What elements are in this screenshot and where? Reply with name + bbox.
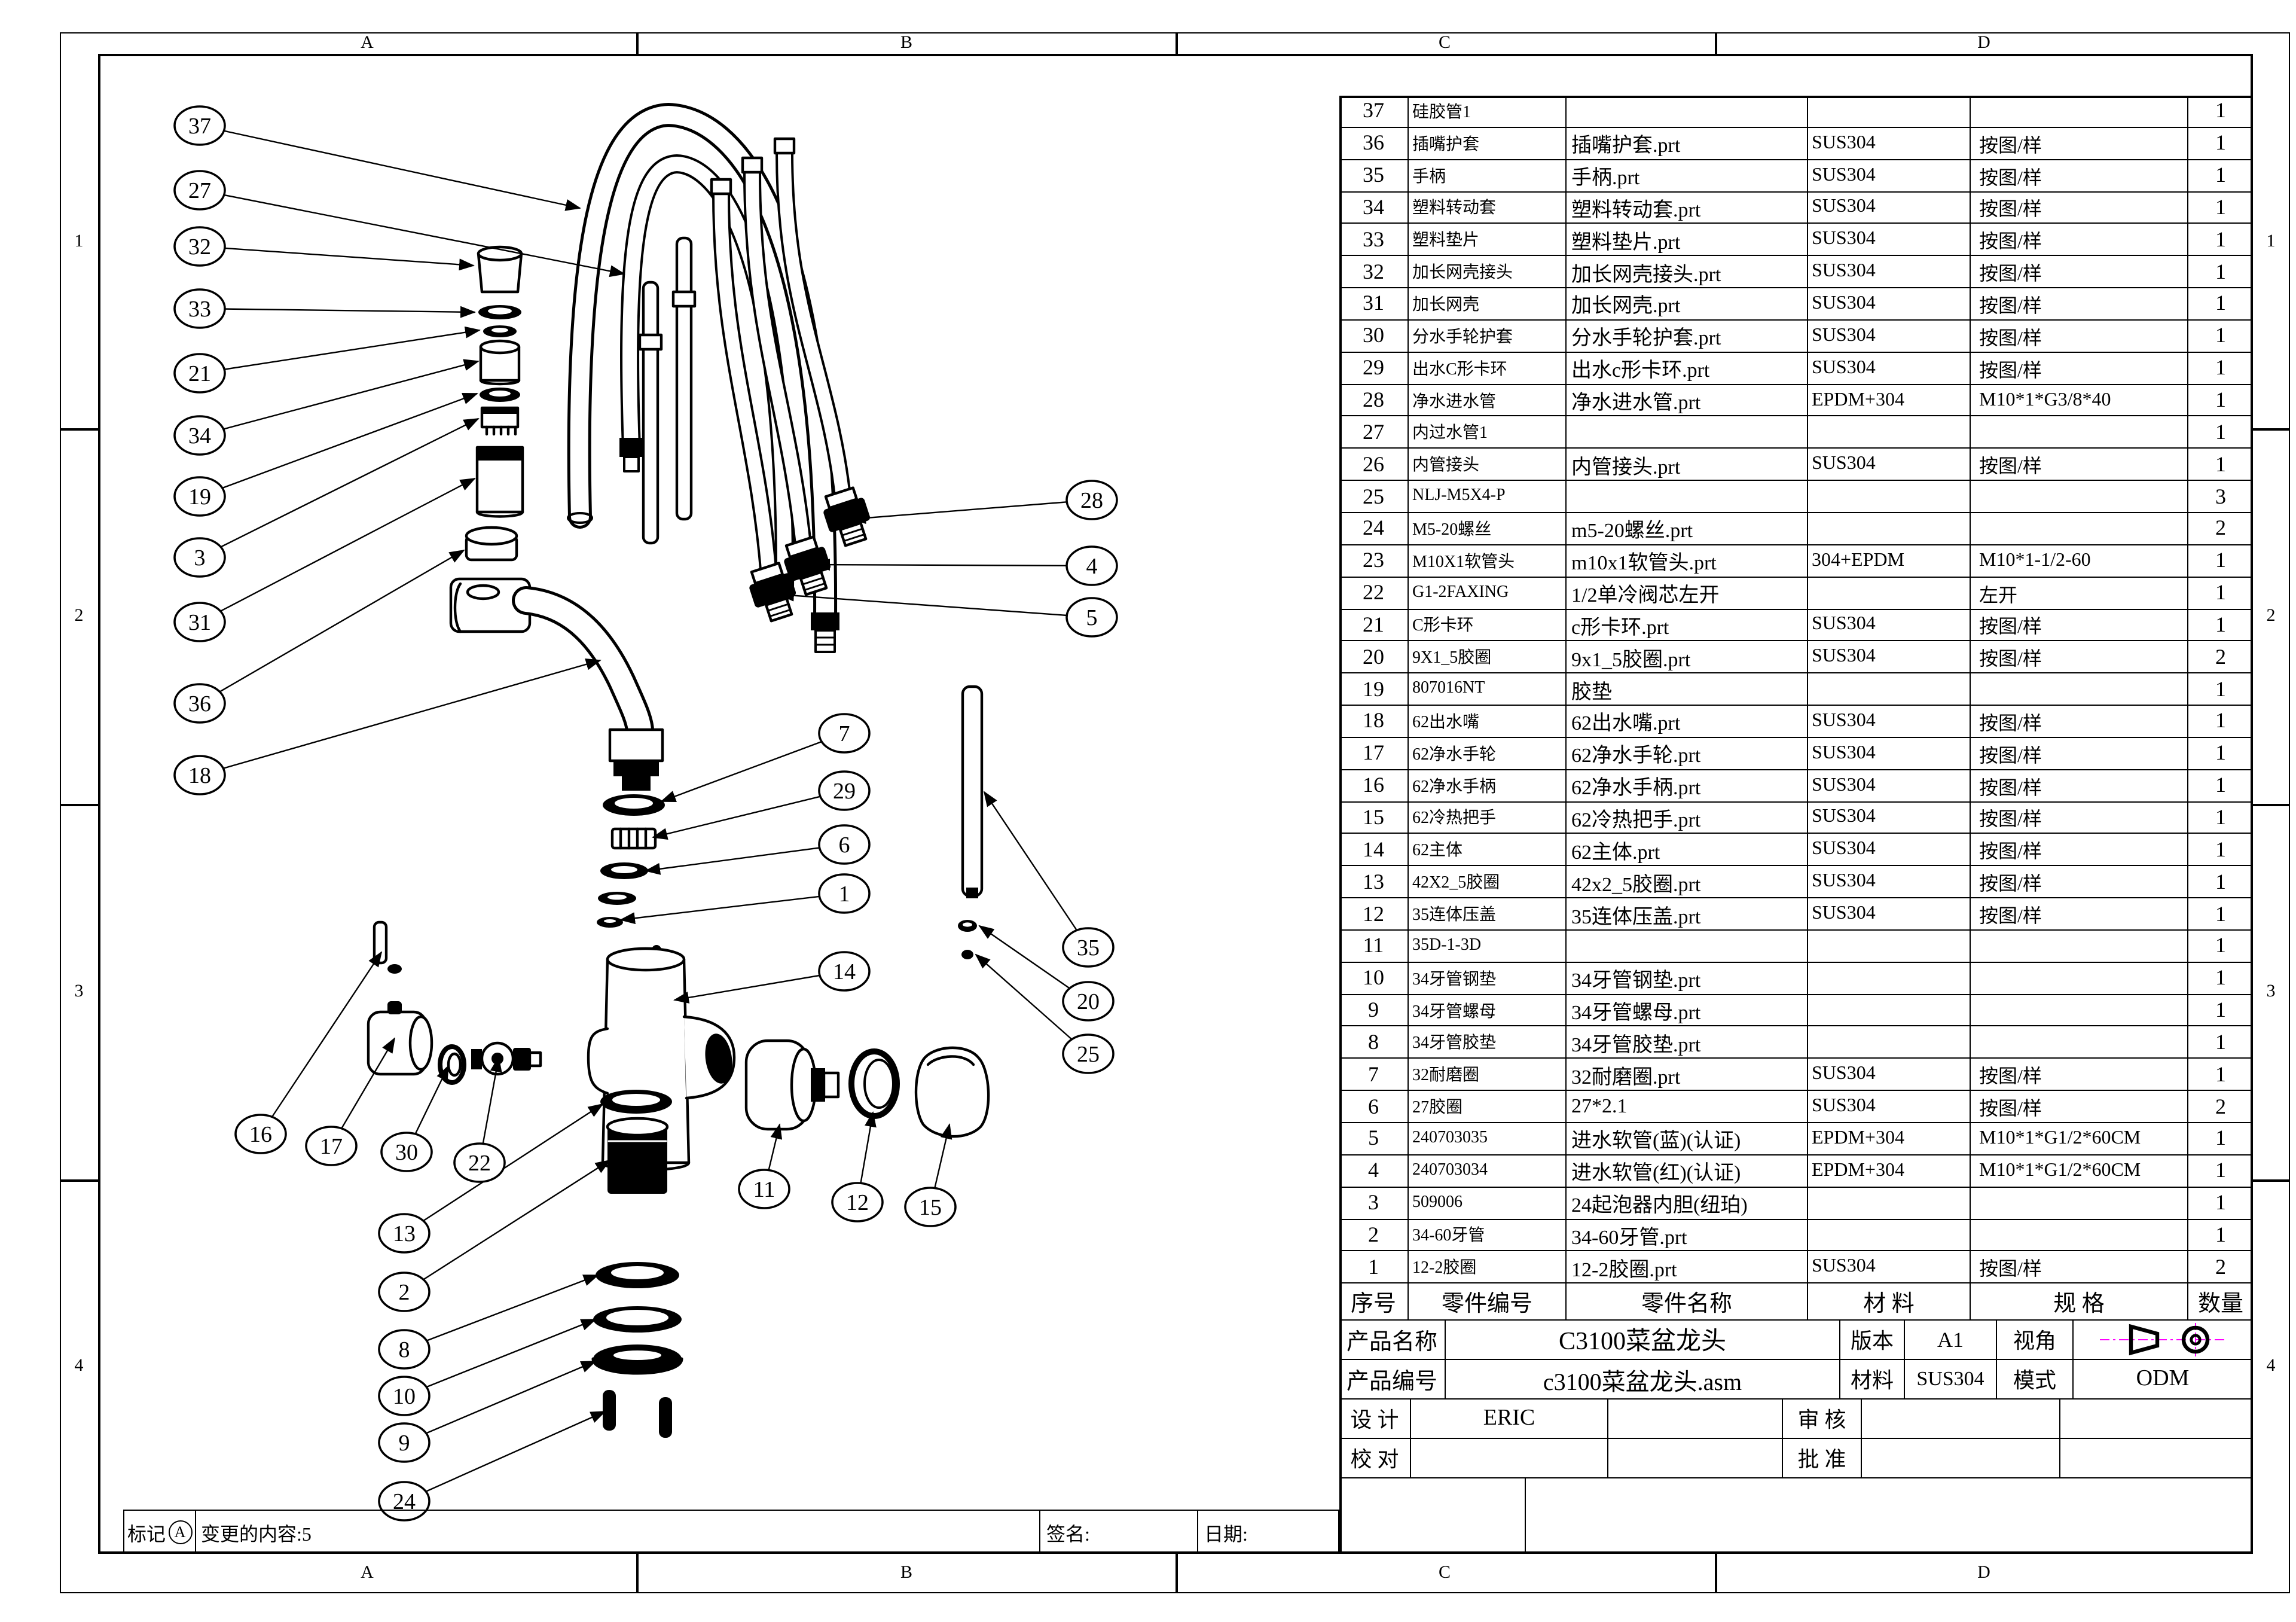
bom-cell-name: 62净水手轮.prt <box>1567 738 1808 769</box>
material-value: SUS304 <box>1905 1360 1997 1400</box>
bom-cell-name: 34牙管钢垫.prt <box>1567 963 1808 994</box>
zone-tick <box>636 1554 638 1593</box>
svg-text:20: 20 <box>1077 989 1100 1014</box>
bom-cell-code: 240703034 <box>1409 1155 1567 1187</box>
balloon-leader-33 <box>200 309 475 312</box>
svg-text:6: 6 <box>839 833 850 858</box>
part-21-c-clip <box>483 325 517 337</box>
bom-cell-qty: 1 <box>2188 417 2253 448</box>
bom-cell-qty: 1 <box>2188 706 2253 737</box>
bom-cell-qty: 1 <box>2188 96 2253 127</box>
bom-row: 627胶圈27*2.1SUS304按图/样2 <box>1339 1091 2253 1123</box>
bom-cell-code: 35连体压盖 <box>1409 898 1567 929</box>
bom-cell-material: SUS304 <box>1808 449 1971 480</box>
bom-cell-spec: 按图/样 <box>1971 1059 2188 1090</box>
part-35-handle-rod <box>963 687 982 898</box>
zone-row-number: 1 <box>61 230 97 254</box>
bom-cell-material: SUS304 <box>1808 898 1971 929</box>
bom-row: 31加长网壳加长网壳.prtSUS304按图/样1 <box>1339 288 2253 321</box>
bom-cell-name: 塑料转动套.prt <box>1567 192 1808 223</box>
bom-cell-code: 509006 <box>1409 1187 1567 1218</box>
bom-cell-no: 37 <box>1339 96 1409 127</box>
bom-cell-name: 35连体压盖.prt <box>1567 898 1808 929</box>
revision-sign-cell: 签名: <box>1040 1510 1198 1554</box>
bom-cell-code: C形卡环 <box>1409 609 1567 641</box>
bom-cell-no: 17 <box>1339 738 1409 769</box>
bom-cell-spec <box>1971 96 2188 127</box>
svg-text:36: 36 <box>188 691 211 717</box>
bom-cell-no: 8 <box>1339 1027 1409 1058</box>
product-code-label: 产品编号 <box>1339 1360 1446 1400</box>
bom-cell-spec: M10*1*G3/8*40 <box>1971 385 2188 416</box>
balloon-leader-6 <box>646 844 844 871</box>
bom-row: 30分水手轮护套分水手轮护套.prtSUS304按图/样1 <box>1339 321 2253 353</box>
zone-column-letter: C <box>1433 32 1457 54</box>
bom-row: 1235连体压盖35连体压盖.prtSUS304按图/样1 <box>1339 898 2253 931</box>
bom-cell-code: 42X2_5胶圈 <box>1409 867 1567 898</box>
product-name-value: C3100菜盆龙头 <box>1446 1321 1840 1360</box>
bom-cell-code: 807016NT <box>1409 673 1567 705</box>
bom-cell-spec: 按图/样 <box>1971 609 2188 641</box>
zone-column-letter: A <box>355 32 379 54</box>
bom-cell-qty: 3 <box>2188 481 2253 512</box>
bom-row: 112-2胶圈12-2胶圈.prtSUS304按图/样2 <box>1339 1252 2253 1284</box>
bom-cell-code: 62净水手轮 <box>1409 738 1567 769</box>
bom-cell-spec: 按图/样 <box>1971 321 2188 352</box>
bom-cell-qty: 1 <box>2188 1123 2253 1154</box>
balloon-3: 3 <box>175 538 225 577</box>
bom-cell-name <box>1567 417 1808 448</box>
bom-row: 1342X2_5胶圈42x2_5胶圈.prtSUS304按图/样1 <box>1339 867 2253 899</box>
bom-cell-no: 26 <box>1339 449 1409 480</box>
bom-cell-code: 加长网壳接头 <box>1409 256 1567 287</box>
svg-text:9: 9 <box>399 1431 410 1456</box>
bom-cell-qty: 1 <box>2188 1027 2253 1058</box>
bom-cell-no: 36 <box>1339 128 1409 159</box>
balloon-30: 30 <box>381 1133 432 1171</box>
zone-row-number: 4 <box>2253 1354 2289 1378</box>
material-label: 材料 <box>1840 1360 1905 1400</box>
bom-header-cell: 材 料 <box>1808 1283 1971 1319</box>
bom-cell-no: 20 <box>1339 642 1409 673</box>
bom-cell-code: 34牙管胶垫 <box>1409 1027 1567 1058</box>
zone-column-letter: D <box>1972 1562 1996 1584</box>
bom-row: 35手柄手柄.prtSUS304按图/样1 <box>1339 160 2253 192</box>
bom-cell-qty: 1 <box>2188 867 2253 898</box>
check-date-cell <box>1608 1439 1783 1478</box>
version-value: A1 <box>1905 1321 1997 1360</box>
part-15-handle-shell <box>916 1048 988 1136</box>
svg-text:5: 5 <box>1086 605 1098 630</box>
balloon-leader-35 <box>984 792 1088 947</box>
bom-cell-no: 11 <box>1339 931 1409 962</box>
part-31-extended-mesh-shell <box>477 447 523 517</box>
bom-row: 934牙管螺母34牙管螺母.prt1 <box>1339 995 2253 1027</box>
bom-cell-material <box>1808 963 1971 994</box>
bom-cell-code: 内过水管1 <box>1409 417 1567 448</box>
balloon-leader-3 <box>200 419 478 557</box>
approve-date-cell <box>2060 1439 2253 1478</box>
bom-cell-no: 24 <box>1339 513 1409 544</box>
check-label: 校 对 <box>1339 1439 1411 1478</box>
bom-cell-material <box>1808 481 1971 512</box>
zone-row-number: 4 <box>61 1354 97 1378</box>
bom-cell-code: 塑料垫片 <box>1409 224 1567 255</box>
bom-cell-no: 21 <box>1339 609 1409 641</box>
product-name-label: 产品名称 <box>1339 1321 1446 1360</box>
zone-tick <box>1176 32 1177 54</box>
bom-cell-no: 33 <box>1339 224 1409 255</box>
bom-row: 350900624起泡器内胆(纽珀)1 <box>1339 1187 2253 1219</box>
bom-row: 32加长网壳接头加长网壳接头.prtSUS304按图/样1 <box>1339 256 2253 288</box>
revision-mark-label: 标记 <box>127 1517 166 1546</box>
bom-row: 4240703034进水软管(红)(认证)EPDM+304M10*1*G1/2*… <box>1339 1155 2253 1188</box>
bom-cell-code: 62净水手柄 <box>1409 770 1567 801</box>
bom-cell-no: 4 <box>1339 1155 1409 1187</box>
label-text: 产品编号 <box>1347 1363 1437 1395</box>
bom-cell-qty: 1 <box>2188 224 2253 255</box>
balloon-13: 13 <box>379 1214 429 1252</box>
balloon-35: 35 <box>1063 928 1113 967</box>
bom-cell-name <box>1567 931 1808 962</box>
bom-cell-qty: 1 <box>2188 288 2253 319</box>
svg-text:1: 1 <box>839 882 850 907</box>
bom-cell-qty: 1 <box>2188 192 2253 223</box>
bom-cell-spec: 按图/样 <box>1971 834 2188 865</box>
balloon-28: 28 <box>1067 481 1117 519</box>
bom-cell-code: 分水手轮护套 <box>1409 321 1567 352</box>
bom-cell-name: c形卡环.prt <box>1567 609 1808 641</box>
bom-cell-spec: 按图/样 <box>1971 128 2188 159</box>
bom-cell-no: 29 <box>1339 353 1409 384</box>
balloon-leader-29 <box>653 791 844 837</box>
bom-cell-material <box>1808 1027 1971 1058</box>
svg-text:37: 37 <box>188 114 211 139</box>
bom-cell-no: 9 <box>1339 995 1409 1026</box>
balloon-12: 12 <box>832 1183 883 1221</box>
bom-cell-spec: 按图/样 <box>1971 353 2188 384</box>
bom-cell-spec: 按图/样 <box>1971 1252 2188 1283</box>
bom-cell-name: 9x1_5胶圈.prt <box>1567 642 1808 673</box>
balloon-10: 10 <box>379 1377 429 1415</box>
bom-cell-qty: 1 <box>2188 802 2253 833</box>
svg-text:3: 3 <box>194 545 206 571</box>
bom-cell-code: 硅胶管1 <box>1409 96 1567 127</box>
zone-column-letter: C <box>1433 1562 1457 1584</box>
balloon-20: 20 <box>1063 982 1113 1020</box>
bom-row: 27内过水管11 <box>1339 417 2253 449</box>
bom-row: 5240703035进水软管(蓝)(认证)EPDM+304M10*1*G1/2*… <box>1339 1123 2253 1155</box>
bom-cell-spec: 按图/样 <box>1971 802 2188 833</box>
svg-text:29: 29 <box>833 779 856 804</box>
bom-cell-material <box>1808 673 1971 705</box>
bom-cell-code: 插嘴护套 <box>1409 128 1567 159</box>
svg-text:32: 32 <box>188 234 211 260</box>
bom-cell-qty: 1 <box>2188 834 2253 865</box>
bom-cell-material: SUS304 <box>1808 288 1971 319</box>
bom-row: 26内管接头内管接头.prtSUS304按图/样1 <box>1339 449 2253 481</box>
bom-cell-spec <box>1971 1027 2188 1058</box>
bom-cell-spec: 按图/样 <box>1971 224 2188 255</box>
balloon-2: 2 <box>379 1273 429 1311</box>
bom-header-cell: 零件编号 <box>1409 1283 1567 1319</box>
balloon-5: 5 <box>1067 598 1117 636</box>
balloon-leader-21 <box>200 330 480 373</box>
bom-cell-code: 62冷热把手 <box>1409 802 1567 833</box>
bom-cell-qty: 1 <box>2188 931 2253 962</box>
part-24-screws <box>603 1390 672 1438</box>
balloon-17: 17 <box>306 1127 356 1165</box>
balloon-leader-32 <box>200 246 474 266</box>
bom-cell-spec: 按图/样 <box>1971 192 2188 223</box>
svg-text:21: 21 <box>188 361 211 386</box>
bom-cell-material: SUS304 <box>1808 224 1971 255</box>
bom-cell-name: 32耐磨圈.prt <box>1567 1059 1808 1090</box>
zone-tick <box>1176 1554 1177 1593</box>
bom-cell-material: SUS304 <box>1808 738 1971 769</box>
bom-cell-code: M5-20螺丝 <box>1409 513 1567 544</box>
bom-cell-name <box>1567 96 1808 127</box>
bom-cell-no: 7 <box>1339 1059 1409 1090</box>
bom-cell-material <box>1808 577 1971 608</box>
bom-cell-material: SUS304 <box>1808 128 1971 159</box>
bom-cell-spec: M10*1*G1/2*60CM <box>1971 1155 2188 1187</box>
drawing-sheet: 3727323321341933136187296114284535202516… <box>0 0 2296 1622</box>
bom-cell-material: SUS304 <box>1808 192 1971 223</box>
balloon-leader-31 <box>200 478 475 622</box>
part-32-mesh-shell-adapter <box>478 247 521 292</box>
bom-row: 25NLJ-M5X4-P3 <box>1339 481 2253 513</box>
approve-label: 批 准 <box>1783 1439 1862 1478</box>
zone-tick <box>636 32 638 54</box>
bom-row: 1562冷热把手62冷热把手.prtSUS304按图/样1 <box>1339 802 2253 834</box>
bom-cell-spec: 按图/样 <box>1971 256 2188 287</box>
bom-cell-spec: 左开 <box>1971 577 2188 608</box>
bom-cell-spec: M10*1-1/2-60 <box>1971 545 2188 577</box>
bom-cell-name: 插嘴护套.prt <box>1567 128 1808 159</box>
part-29-outlet-c-clip <box>612 829 655 848</box>
bom-cell-name: 塑料垫片.prt <box>1567 224 1808 255</box>
part-34-plastic-rotation-sleeve <box>481 341 519 384</box>
bom-cell-material: SUS304 <box>1808 609 1971 641</box>
bom-cell-spec: M10*1*G1/2*60CM <box>1971 1123 2188 1154</box>
balloon-34: 34 <box>175 416 225 455</box>
bom-row: 1662净水手柄62净水手柄.prtSUS304按图/样1 <box>1339 770 2253 802</box>
bom-row: 209X1_5胶圈9x1_5胶圈.prtSUS304按图/样2 <box>1339 642 2253 674</box>
svg-text:30: 30 <box>395 1140 418 1165</box>
zone-row-number: 2 <box>2253 604 2289 628</box>
bom-cell-code: 塑料转动套 <box>1409 192 1567 223</box>
bom-cell-material: SUS304 <box>1808 1252 1971 1283</box>
bom-cell-material: SUS304 <box>1808 256 1971 287</box>
bom-cell-code: 240703035 <box>1409 1123 1567 1154</box>
balloon-29: 29 <box>819 772 869 810</box>
bom-cell-name: 34牙管螺母.prt <box>1567 995 1808 1026</box>
part-19-rubber-gasket <box>480 388 520 402</box>
exploded-view-drawing: 3727323321341933136187296114284535202516… <box>62 53 1339 1554</box>
svg-text:16: 16 <box>249 1122 272 1147</box>
part-8-tube-rubber-washer <box>596 1262 679 1288</box>
design-date-cell <box>1608 1400 1783 1439</box>
balloon-leader-9 <box>404 1361 596 1443</box>
balloon-leader-7 <box>661 733 844 801</box>
bom-cell-material <box>1808 513 1971 544</box>
bom-cell-material: SUS304 <box>1808 802 1971 833</box>
part-7-wear-ring <box>603 794 665 816</box>
bom-cell-code: NLJ-M5X4-P <box>1409 481 1567 512</box>
bom-cell-name: 34牙管胶垫.prt <box>1567 1027 1808 1058</box>
bom-row: 834牙管胶垫34牙管胶垫.prt1 <box>1339 1027 2253 1059</box>
bom-cell-no: 32 <box>1339 256 1409 287</box>
bom-row: 1462主体62主体.prtSUS304按图/样1 <box>1339 834 2253 867</box>
bom-cell-qty: 1 <box>2188 385 2253 416</box>
bom-cell-spec: 按图/样 <box>1971 160 2188 191</box>
part-25-screw-nlj <box>961 950 973 959</box>
bom-cell-name: 62冷热把手.prt <box>1567 802 1808 833</box>
bom-cell-spec <box>1971 931 2188 962</box>
bom-cell-name: 净水进水管.prt <box>1567 385 1808 416</box>
bom-cell-name: 手柄.prt <box>1567 160 1808 191</box>
bom-cell-code: M10X1软管头 <box>1409 545 1567 577</box>
bom-cell-spec <box>1971 513 2188 544</box>
title-block-empty-left <box>1339 1478 1526 1554</box>
bom-cell-qty: 1 <box>2188 738 2253 769</box>
audit-date-cell <box>2060 1400 2253 1439</box>
bom-row: 1034牙管钢垫34牙管钢垫.prt1 <box>1339 963 2253 995</box>
bom-cell-name: 分水手轮护套.prt <box>1567 321 1808 352</box>
bom-cell-name: 24起泡器内胆(纽珀) <box>1567 1187 1808 1218</box>
bom-cell-qty: 1 <box>2188 256 2253 287</box>
bom-cell-spec <box>1971 417 2188 448</box>
balloon-18: 18 <box>175 756 225 794</box>
title-block-empty-right <box>1526 1478 2253 1554</box>
view-angle-cell <box>2074 1321 2253 1360</box>
bom-row: 23M10X1软管头m10x1软管头.prt304+EPDMM10*1-1/2-… <box>1339 545 2253 578</box>
balloon-1: 1 <box>819 874 869 913</box>
checker-value <box>1411 1439 1608 1478</box>
mode-value: ODM <box>2074 1360 2253 1400</box>
bom-cell-qty: 1 <box>2188 898 2253 929</box>
view-angle-label: 视角 <box>1997 1321 2074 1360</box>
bom-cell-code: 35D-1-3D <box>1409 931 1567 962</box>
bom-cell-material: SUS304 <box>1808 1091 1971 1122</box>
svg-text:7: 7 <box>839 721 850 746</box>
svg-text:18: 18 <box>188 763 211 788</box>
bom-cell-no: 31 <box>1339 288 1409 319</box>
mode-label: 模式 <box>1997 1360 2074 1400</box>
bom-cell-qty: 1 <box>2188 1219 2253 1251</box>
auditor-value <box>1862 1400 2060 1439</box>
bom-row: 29出水C形卡环出水c形卡环.prtSUS304按图/样1 <box>1339 353 2253 385</box>
bom-cell-code: 27胶圈 <box>1409 1091 1567 1122</box>
bom-cell-material: SUS304 <box>1808 1059 1971 1090</box>
bom-cell-no: 1 <box>1339 1252 1409 1283</box>
bom-cell-no: 18 <box>1339 706 1409 737</box>
balloon-37: 37 <box>175 106 225 145</box>
bom-row: 33塑料垫片塑料垫片.prtSUS304按图/样1 <box>1339 224 2253 257</box>
balloon-14: 14 <box>819 952 869 990</box>
bom-cell-no: 30 <box>1339 321 1409 352</box>
zone-column-letter: A <box>355 1562 379 1584</box>
designer-value: ERIC <box>1411 1400 1608 1439</box>
balloon-leader-10 <box>404 1319 596 1396</box>
svg-text:34: 34 <box>188 423 211 449</box>
bom-header-cell: 零件名称 <box>1567 1283 1808 1319</box>
bom-cell-spec: 按图/样 <box>1971 738 2188 769</box>
version-label: 版本 <box>1840 1321 1905 1360</box>
zone-column-letter: B <box>894 32 918 54</box>
bom-cell-no: 28 <box>1339 385 1409 416</box>
bom-cell-spec <box>1971 673 2188 705</box>
zone-tick <box>2253 804 2290 806</box>
balloon-8: 8 <box>379 1330 429 1368</box>
balloon-27: 27 <box>175 171 225 209</box>
bom-cell-code: 加长网壳 <box>1409 288 1567 319</box>
svg-text:13: 13 <box>393 1221 416 1246</box>
bom-row: 22G1-2FAXING1/2单冷阀芯左开左开1 <box>1339 577 2253 609</box>
bom-cell-no: 15 <box>1339 802 1409 833</box>
revision-mark-circle-a: A <box>168 1520 192 1544</box>
zone-column-letter: D <box>1972 32 1996 54</box>
svg-text:19: 19 <box>188 484 211 510</box>
bom-cell-name: 进水软管(蓝)(认证) <box>1567 1123 1808 1154</box>
approver-value <box>1862 1439 2060 1478</box>
bom-cell-name: 加长网壳.prt <box>1567 288 1808 319</box>
bom-row: 36插嘴护套插嘴护套.prtSUS304按图/样1 <box>1339 128 2253 160</box>
bom-row: 24M5-20螺丝m5-20螺丝.prt2 <box>1339 513 2253 545</box>
bom-cell-material: SUS304 <box>1808 770 1971 801</box>
bom-cell-material: SUS304 <box>1808 160 1971 191</box>
bom-header-cell: 规 格 <box>1971 1283 2188 1319</box>
balloon-leader-2 <box>404 1160 610 1292</box>
svg-text:33: 33 <box>188 297 211 322</box>
bom-cell-name: 内管接头.prt <box>1567 449 1808 480</box>
bom-cell-no: 13 <box>1339 867 1409 898</box>
balloon-15: 15 <box>905 1188 955 1226</box>
bom-cell-code: 32耐磨圈 <box>1409 1059 1567 1090</box>
svg-text:2: 2 <box>399 1280 410 1305</box>
balloon-leader-16 <box>261 952 381 1134</box>
zone-row-number: 1 <box>2253 230 2289 254</box>
bom-row: 732耐磨圈32耐磨圈.prtSUS304按图/样1 <box>1339 1059 2253 1092</box>
balloon-leader-37 <box>200 126 580 208</box>
bom-cell-qty: 1 <box>2188 995 2253 1026</box>
bom-cell-code: 34-60牙管 <box>1409 1219 1567 1251</box>
balloon-leader-4 <box>816 565 1092 566</box>
bom-cell-material: SUS304 <box>1808 321 1971 352</box>
bom-cell-material: SUS304 <box>1808 353 1971 384</box>
bom-cell-no: 23 <box>1339 545 1409 577</box>
part-9-tube-nut <box>593 1344 682 1373</box>
bom-cell-qty: 1 <box>2188 353 2253 384</box>
bom-cell-name: 加长网壳接头.prt <box>1567 256 1808 287</box>
bom-cell-material: EPDM+304 <box>1808 1123 1971 1154</box>
balloon-22: 22 <box>454 1144 505 1182</box>
bom-cell-material <box>1808 931 1971 962</box>
bom-row: 1135D-1-3D1 <box>1339 931 2253 963</box>
bom-cell-code: 净水进水管 <box>1409 385 1567 416</box>
bom-cell-name: 胶垫 <box>1567 673 1808 705</box>
svg-text:14: 14 <box>833 959 856 984</box>
bom-cell-name: 1/2单冷阀芯左开 <box>1567 577 1808 608</box>
svg-text:28: 28 <box>1080 488 1103 513</box>
bom-cell-material <box>1808 417 1971 448</box>
bom-cell-no: 12 <box>1339 898 1409 929</box>
bom-cell-no: 6 <box>1339 1091 1409 1122</box>
zone-row-number: 2 <box>61 604 97 628</box>
bom-cell-spec: 按图/样 <box>1971 449 2188 480</box>
bom-cell-no: 25 <box>1339 481 1409 512</box>
